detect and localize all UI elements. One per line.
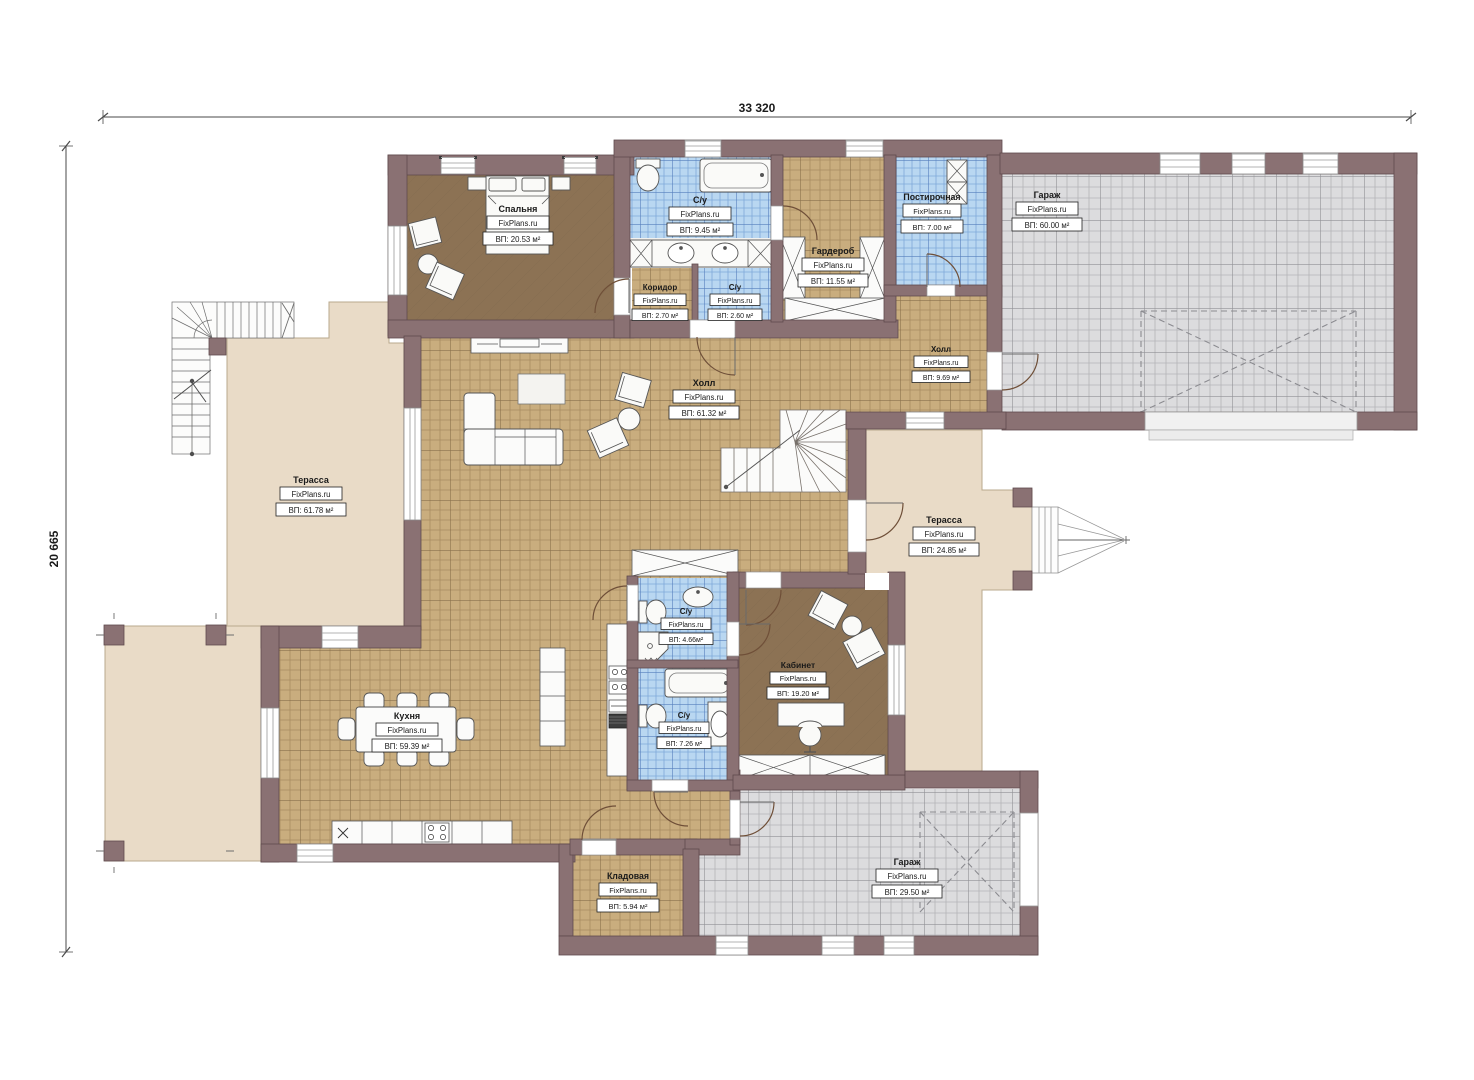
svg-text:Холл: Холл bbox=[693, 378, 716, 388]
svg-text:FixPlans.ru: FixPlans.ru bbox=[609, 886, 647, 895]
svg-text:FixPlans.ru: FixPlans.ru bbox=[499, 219, 538, 228]
svg-text:FixPlans.ru: FixPlans.ru bbox=[814, 261, 853, 270]
svg-text:ВП: 7.00 м²: ВП: 7.00 м² bbox=[913, 223, 952, 232]
svg-text:ВП: 7.26 м²: ВП: 7.26 м² bbox=[666, 741, 703, 748]
svg-text:ВП: 61.32 м²: ВП: 61.32 м² bbox=[682, 409, 727, 418]
svg-text:С/у: С/у bbox=[680, 607, 693, 616]
svg-text:FixPlans.ru: FixPlans.ru bbox=[888, 872, 927, 881]
svg-text:Гараж: Гараж bbox=[1034, 190, 1061, 200]
svg-text:С/у: С/у bbox=[693, 195, 707, 205]
svg-text:FixPlans.ru: FixPlans.ru bbox=[666, 726, 701, 733]
svg-text:ВП: 2.60 м²: ВП: 2.60 м² bbox=[717, 313, 754, 320]
svg-text:FixPlans.ru: FixPlans.ru bbox=[292, 490, 331, 499]
svg-text:Кухня: Кухня bbox=[394, 711, 420, 721]
svg-text:Гараж: Гараж bbox=[894, 857, 921, 867]
svg-text:ВП: 29.50 м²: ВП: 29.50 м² bbox=[885, 888, 930, 897]
svg-text:ВП: 2.70 м²: ВП: 2.70 м² bbox=[642, 313, 679, 320]
svg-text:Кабинет: Кабинет bbox=[781, 660, 815, 670]
svg-text:ВП: 9.69 м²: ВП: 9.69 м² bbox=[923, 375, 960, 382]
svg-text:FixPlans.ru: FixPlans.ru bbox=[388, 726, 427, 735]
svg-text:FixPlans.ru: FixPlans.ru bbox=[1028, 205, 1067, 214]
svg-text:ВП: 4.66м²: ВП: 4.66м² bbox=[669, 637, 704, 644]
svg-text:FixPlans.ru: FixPlans.ru bbox=[717, 298, 752, 305]
svg-text:Холл: Холл bbox=[931, 345, 951, 354]
svg-text:FixPlans.ru: FixPlans.ru bbox=[923, 360, 958, 367]
svg-text:Кладовая: Кладовая bbox=[607, 871, 649, 881]
svg-text:FixPlans.ru: FixPlans.ru bbox=[913, 207, 951, 216]
svg-text:FixPlans.ru: FixPlans.ru bbox=[681, 210, 720, 219]
svg-text:ВП: 20.53 м²: ВП: 20.53 м² bbox=[496, 235, 541, 244]
svg-text:С/у: С/у bbox=[678, 711, 691, 720]
svg-text:Терасса: Терасса bbox=[293, 475, 330, 485]
svg-text:FixPlans.ru: FixPlans.ru bbox=[668, 622, 703, 629]
svg-text:20 665: 20 665 bbox=[47, 530, 61, 567]
svg-text:Коридор: Коридор bbox=[643, 283, 678, 292]
svg-text:ВП: 19.20 м²: ВП: 19.20 м² bbox=[777, 689, 819, 698]
svg-text:ВП: 59.39 м²: ВП: 59.39 м² bbox=[385, 742, 430, 751]
svg-text:FixPlans.ru: FixPlans.ru bbox=[780, 674, 817, 683]
svg-text:ВП: 11.55 м²: ВП: 11.55 м² bbox=[811, 277, 856, 286]
svg-text:33 320: 33 320 bbox=[739, 101, 776, 115]
svg-text:ВП: 61.78 м²: ВП: 61.78 м² bbox=[289, 506, 334, 515]
svg-text:Гардероб: Гардероб bbox=[812, 246, 855, 256]
svg-text:ВП: 24.85 м²: ВП: 24.85 м² bbox=[922, 546, 967, 555]
svg-text:С/у: С/у bbox=[729, 283, 742, 292]
svg-text:FixPlans.ru: FixPlans.ru bbox=[925, 530, 964, 539]
svg-text:ВП: 5.94 м²: ВП: 5.94 м² bbox=[609, 902, 648, 911]
svg-text:Терасса: Терасса bbox=[926, 515, 963, 525]
svg-text:FixPlans.ru: FixPlans.ru bbox=[685, 393, 724, 402]
svg-text:Спальня: Спальня bbox=[499, 204, 538, 214]
svg-text:FixPlans.ru: FixPlans.ru bbox=[642, 298, 677, 305]
svg-text:ВП: 60.00 м²: ВП: 60.00 м² bbox=[1025, 221, 1070, 230]
svg-text:Постирочная: Постирочная bbox=[903, 192, 960, 202]
svg-text:ВП: 9.45 м²: ВП: 9.45 м² bbox=[680, 226, 721, 235]
